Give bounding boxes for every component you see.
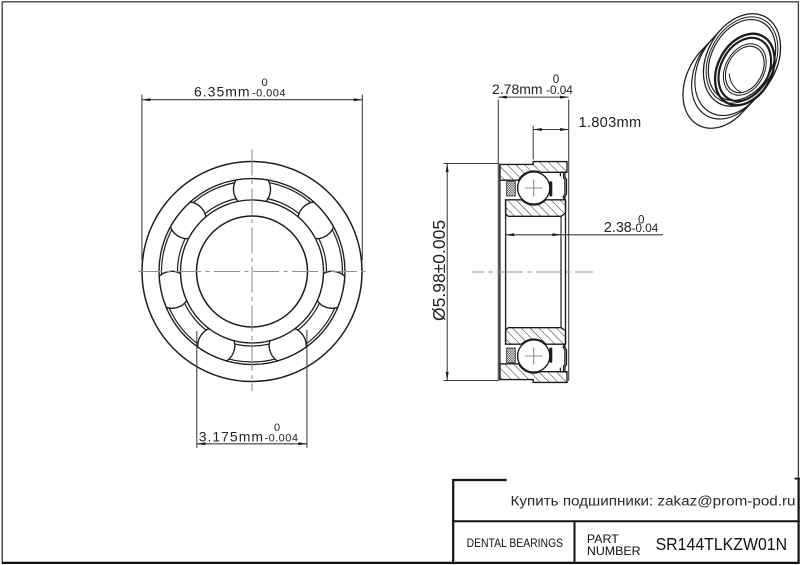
svg-text:Ø5.98±0.005: Ø5.98±0.005	[429, 220, 449, 321]
svg-text:-0.004: -0.004	[265, 432, 299, 444]
svg-text:0: 0	[274, 422, 280, 434]
svg-text:3.175mm: 3.175mm	[199, 428, 264, 444]
svg-text:Купить подшипники: zakaz@prom-: Купить подшипники: zakaz@prom-pod.ru	[511, 494, 796, 510]
svg-text:-0.04: -0.04	[632, 222, 659, 235]
svg-text:DENTAL BEARINGS: DENTAL BEARINGS	[467, 536, 563, 550]
svg-text:-0.04: -0.04	[546, 84, 573, 97]
svg-text:SR144TLKZW01N: SR144TLKZW01N	[656, 534, 788, 554]
svg-text:0: 0	[553, 73, 560, 86]
svg-text:2.78mm: 2.78mm	[492, 81, 543, 97]
svg-text:-0.004: -0.004	[252, 87, 286, 99]
svg-text:NUMBER: NUMBER	[587, 544, 641, 558]
svg-text:1.803mm: 1.803mm	[579, 115, 642, 131]
svg-text:0: 0	[262, 77, 268, 89]
svg-text:6.35mm: 6.35mm	[194, 83, 251, 99]
svg-text:0: 0	[638, 213, 645, 226]
svg-text:2.38: 2.38	[604, 220, 632, 236]
